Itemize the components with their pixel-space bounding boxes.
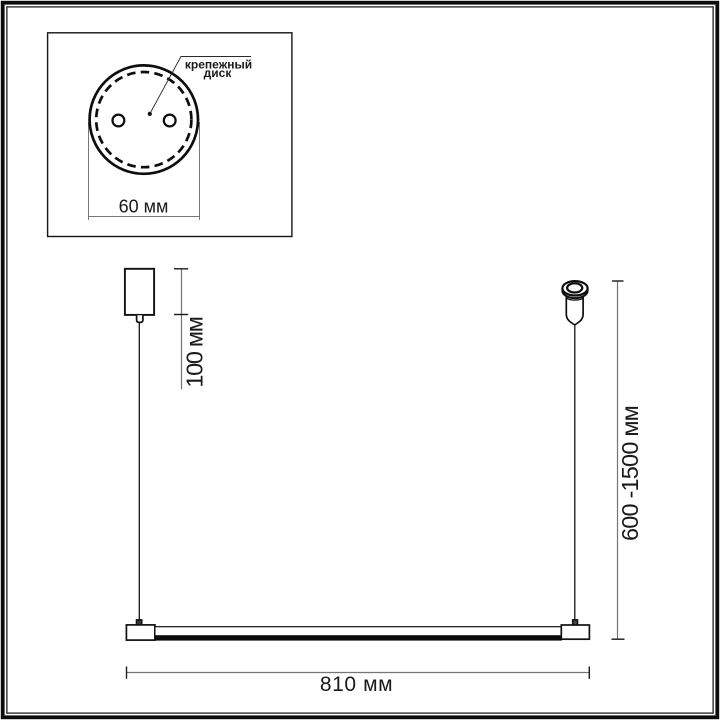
svg-text:810 мм: 810 мм	[320, 673, 393, 696]
svg-text:диск: диск	[204, 66, 233, 80]
svg-text:100 мм: 100 мм	[182, 317, 208, 387]
svg-text:60 мм: 60 мм	[119, 197, 169, 217]
svg-text:600 -1500 мм: 600 -1500 мм	[617, 406, 643, 541]
